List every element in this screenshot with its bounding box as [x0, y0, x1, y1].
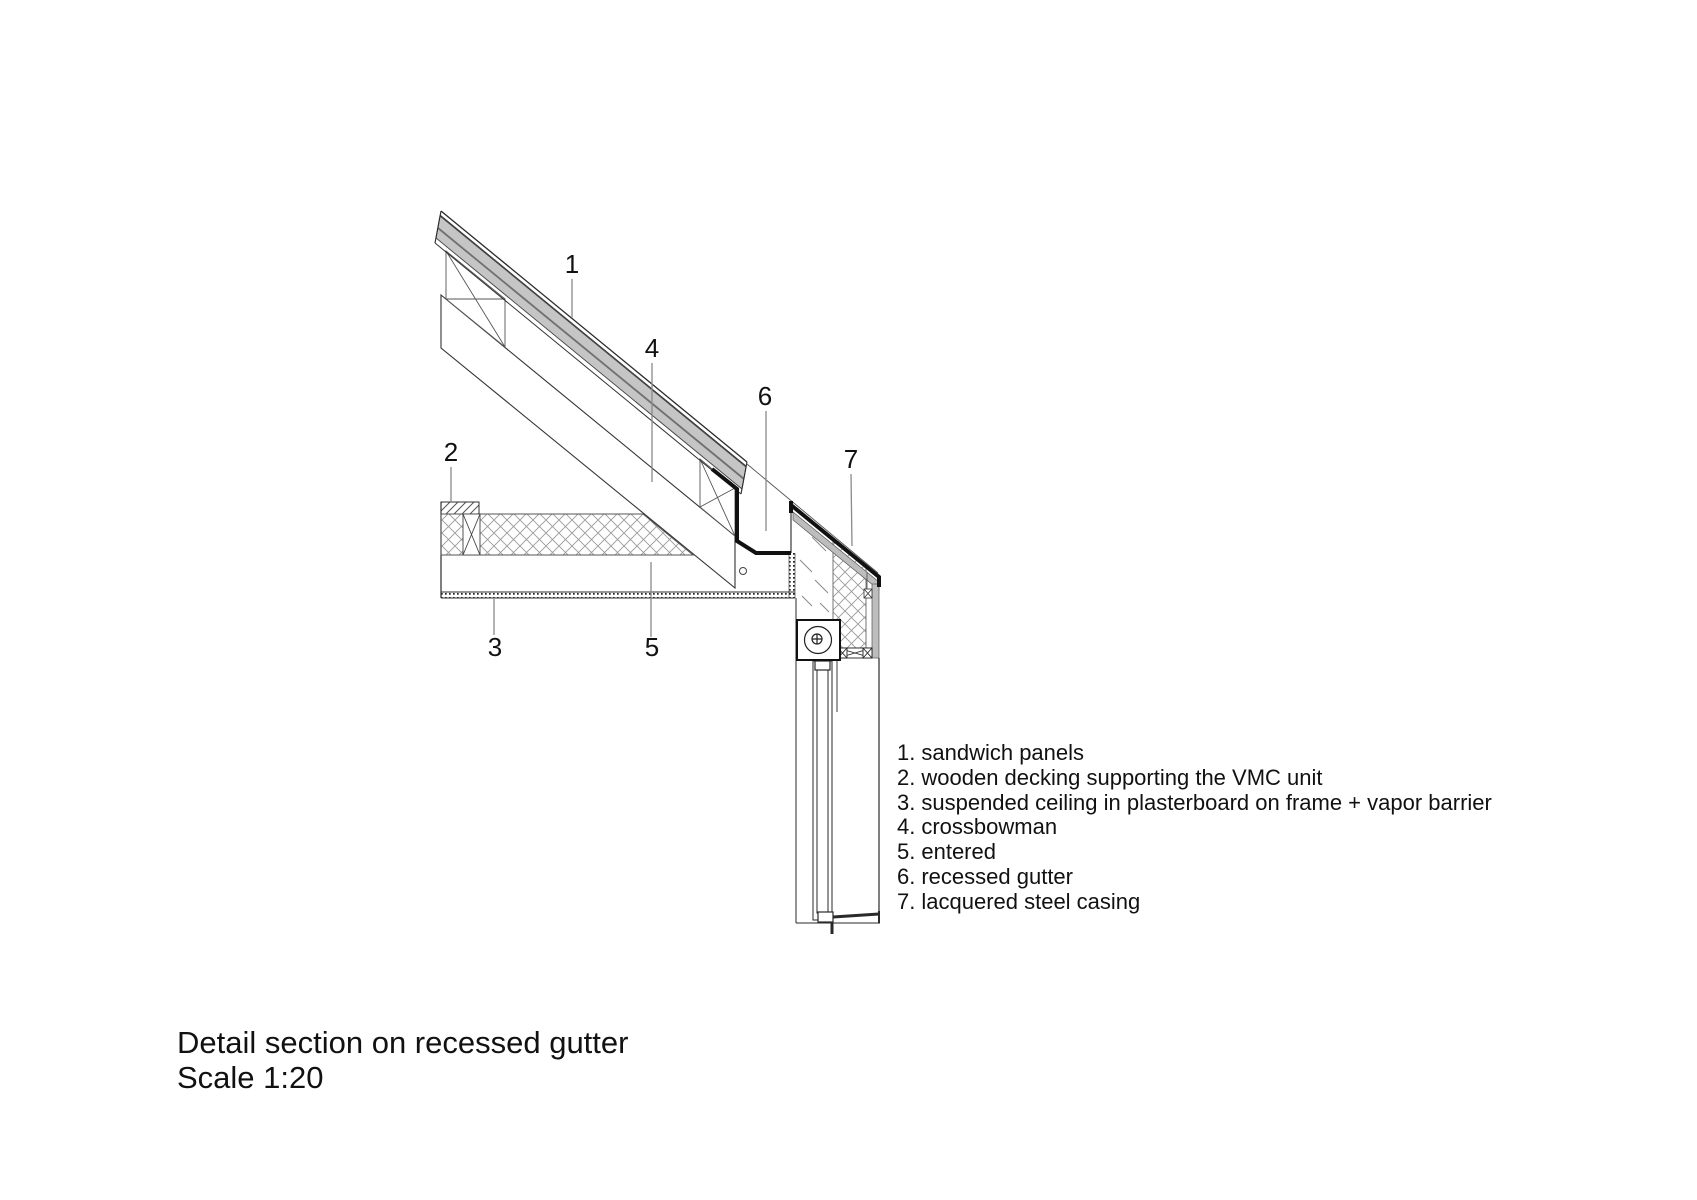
legend-item-5: 5.entered — [897, 840, 1492, 865]
duct-symbol-icon — [812, 634, 823, 645]
sheet: 1 2 3 4 5 6 7 1.sandwich panels 2.wooden… — [0, 0, 1697, 1200]
plasterboard-ceiling — [441, 592, 795, 598]
legend-item-number: 2. — [897, 765, 915, 790]
callout-2: 2 — [444, 437, 458, 467]
legend-item-label: crossbowman — [921, 814, 1057, 839]
decking-block — [441, 502, 479, 514]
fastener-circle — [740, 568, 747, 575]
vmc-box — [797, 620, 840, 660]
legend-item-label: sandwich panels — [921, 740, 1084, 765]
downpipe — [813, 661, 833, 922]
drawing-title: Detail section on recessed gutter — [177, 1026, 628, 1061]
legend-item-4: 4.crossbowman — [897, 815, 1492, 840]
legend-item-1: 1.sandwich panels — [897, 741, 1492, 766]
callout-1: 1 — [565, 249, 579, 279]
fixing-block-mid — [864, 589, 872, 598]
casing-vertical — [872, 584, 879, 658]
wall-bottom-plate — [838, 648, 872, 658]
callout-3: 3 — [488, 632, 502, 662]
drawing-scale: Scale 1:20 — [177, 1061, 628, 1096]
title-block: Detail section on recessed gutter Scale … — [177, 1026, 628, 1095]
legend-item-label: wooden decking supporting the VMC unit — [921, 765, 1322, 790]
legend-item-number: 4. — [897, 814, 915, 839]
wall-bottom-closure — [796, 911, 880, 934]
legend: 1.sandwich panels 2.wooden decking suppo… — [897, 741, 1492, 915]
ceiling-frame-member — [463, 514, 480, 555]
eave-line — [747, 464, 878, 573]
callout-7: 7 — [844, 444, 858, 474]
legend-item-label: suspended ceiling in plasterboard on fra… — [921, 790, 1492, 815]
legend-item-2: 2.wooden decking supporting the VMC unit — [897, 766, 1492, 791]
leader-line-7 — [851, 474, 852, 546]
section-drawing: 1 2 3 4 5 6 7 — [0, 0, 1697, 1200]
legend-item-number: 1. — [897, 740, 915, 765]
legend-item-label: recessed gutter — [921, 864, 1073, 889]
callout-5: 5 — [645, 632, 659, 662]
legend-item-number: 5. — [897, 839, 915, 864]
legend-item-7: 7.lacquered steel casing — [897, 890, 1492, 915]
callout-6: 6 — [758, 381, 772, 411]
legend-item-3: 3.suspended ceiling in plasterboard on f… — [897, 791, 1492, 816]
legend-item-6: 6.recessed gutter — [897, 865, 1492, 890]
wall-plasterboard-strip — [789, 553, 795, 598]
legend-item-number: 3. — [897, 790, 915, 815]
legend-item-number: 7. — [897, 889, 915, 914]
legend-item-number: 6. — [897, 864, 915, 889]
legend-item-label: entered — [921, 839, 996, 864]
callout-4: 4 — [645, 333, 659, 363]
legend-item-label: lacquered steel casing — [921, 889, 1140, 914]
